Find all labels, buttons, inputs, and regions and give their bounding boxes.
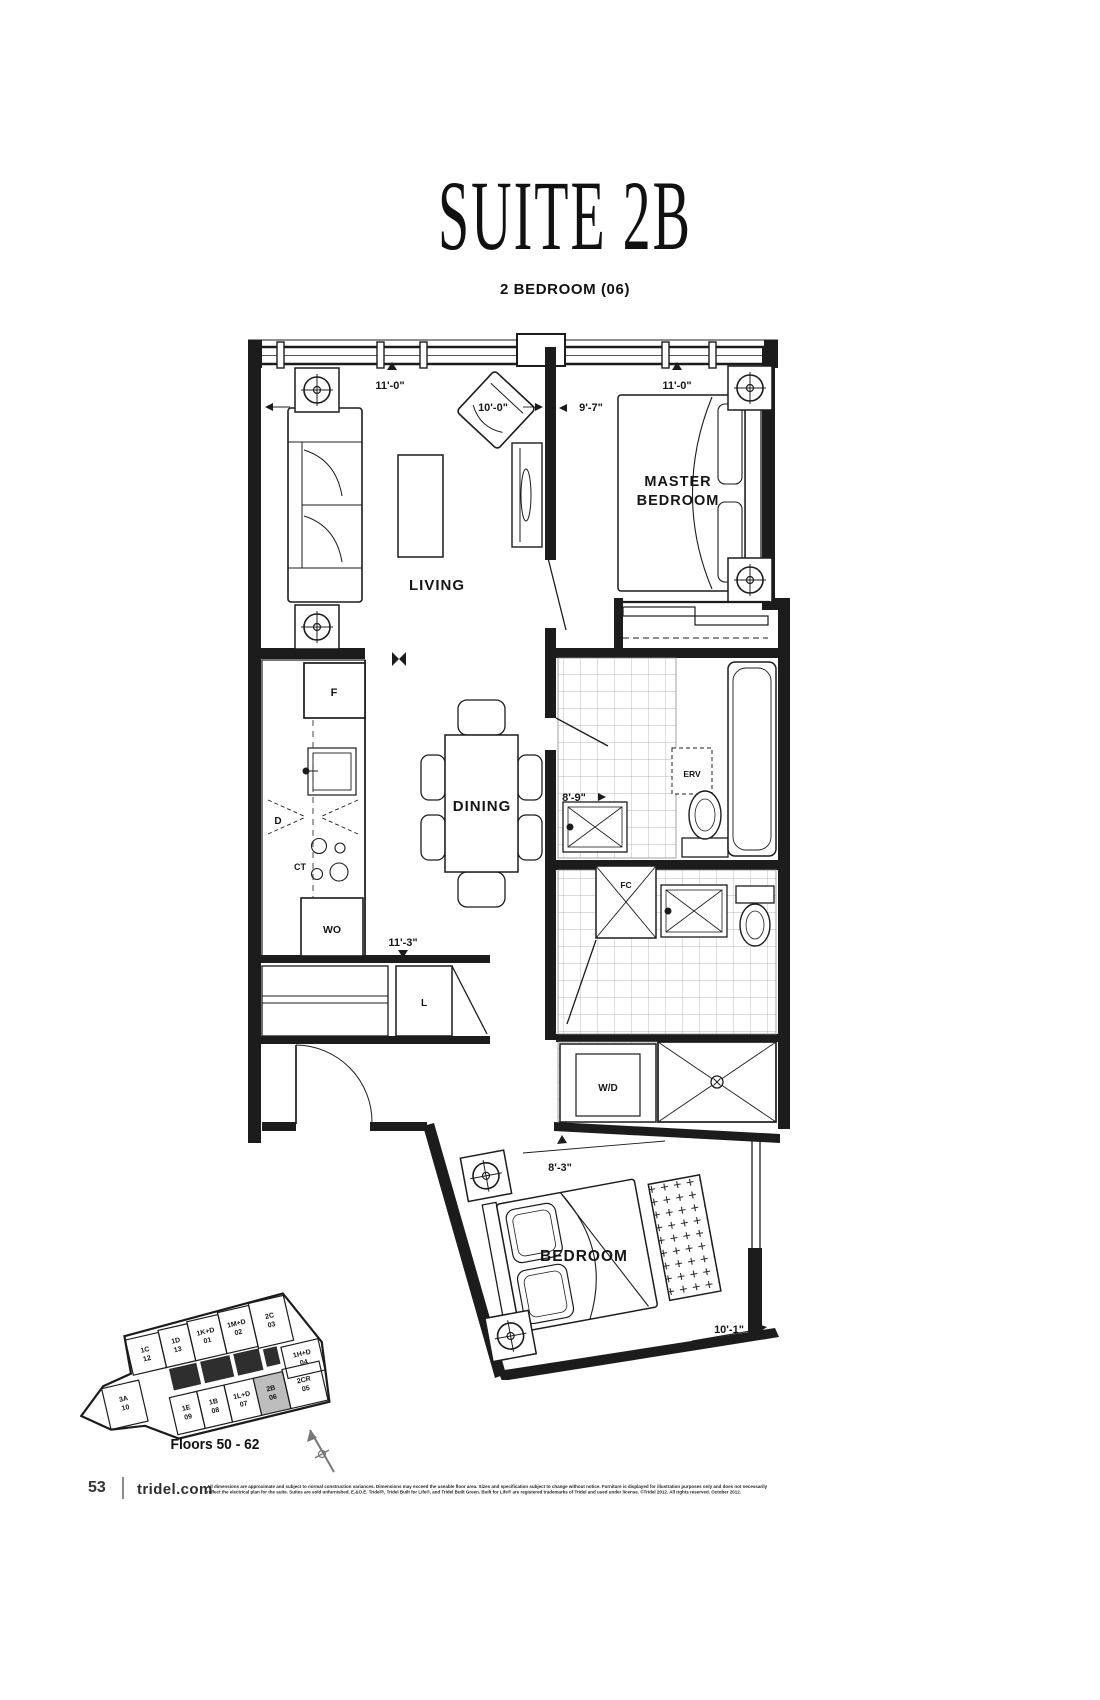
- master-door: [548, 558, 566, 630]
- cooktop-label: CT: [294, 862, 306, 872]
- website-label: tridel.com: [137, 1481, 213, 1498]
- entry-closets: [262, 966, 487, 1036]
- master-closet: [620, 602, 770, 638]
- wall-oven-label: WO: [323, 924, 341, 936]
- kitchen: [262, 660, 365, 958]
- room-label-bedroom: BEDROOM: [540, 1248, 628, 1265]
- bench: [648, 1175, 721, 1301]
- shower: [658, 1042, 776, 1122]
- break-mark: [392, 652, 406, 666]
- floor-plan-drawing: LIVING MASTER BEDROOM: [240, 300, 800, 1380]
- fridge-label: F: [331, 687, 338, 699]
- dim-master-entry: 9'-7": [579, 402, 603, 414]
- page-title: SUITE 2B: [265, 160, 865, 274]
- dim-bedroom-width: 8'-3": [548, 1162, 572, 1174]
- entry-door: [296, 1045, 372, 1124]
- vanity-sink-2: [661, 885, 727, 937]
- north-arrow-icon: [300, 1420, 344, 1480]
- disclaimer: All dimensions are approximate and subje…: [207, 1484, 557, 1495]
- kitchen-sink: [303, 748, 356, 795]
- dim-living-width: 10'-0": [478, 402, 508, 414]
- vanity-sink: [563, 802, 627, 852]
- erv-label: ERV: [683, 769, 701, 779]
- fan-coil: [596, 866, 656, 938]
- coffee-table: [398, 455, 443, 557]
- room-label-master-2: BEDROOM: [637, 493, 720, 509]
- disclaimer-line-2: reflect the electrical plan for the suit…: [207, 1490, 907, 1496]
- tv-console: [512, 443, 542, 547]
- potlight-icon: [295, 368, 339, 412]
- linen-closet-label: L: [421, 998, 427, 1009]
- washer-dryer-label: W/D: [598, 1083, 617, 1094]
- brochure-page: SUITE 2B 2 BEDROOM (06): [0, 0, 1100, 1700]
- potlight-icon: [460, 1150, 511, 1201]
- exterior-column: [517, 334, 565, 366]
- cooktop: [312, 839, 349, 882]
- bedroom-furniture: [455, 1116, 726, 1362]
- fan-coil-label: FC: [620, 880, 631, 890]
- room-label-master-1: MASTER: [644, 474, 711, 490]
- floors-label: Floors 50 - 62: [128, 1436, 303, 1453]
- dim-living-window: 11'-0": [375, 380, 404, 392]
- sofa: [288, 408, 362, 602]
- page-number: 53: [88, 1479, 106, 1497]
- dim-kitchen: 11'-3": [388, 937, 417, 949]
- toilet: [682, 791, 728, 857]
- potlight-icon: [295, 605, 339, 649]
- second-bath: [558, 866, 776, 1122]
- bathtub: [728, 662, 776, 856]
- dim-hall: 8'-9": [562, 792, 586, 804]
- potlight-icon: [728, 558, 772, 602]
- room-label-living: LIVING: [409, 577, 465, 594]
- main-bath: [556, 658, 776, 858]
- potlight-icon: [728, 366, 772, 410]
- room-label-dining: DINING: [453, 798, 512, 815]
- dishwasher-label: D: [274, 816, 281, 827]
- page-subtitle: 2 BEDROOM (06): [265, 281, 865, 298]
- footer-divider: [122, 1477, 124, 1499]
- potlight-icon: [485, 1310, 536, 1361]
- floor-plan: LIVING MASTER BEDROOM: [240, 300, 800, 1380]
- dim-master-window: 11'-0": [662, 380, 691, 392]
